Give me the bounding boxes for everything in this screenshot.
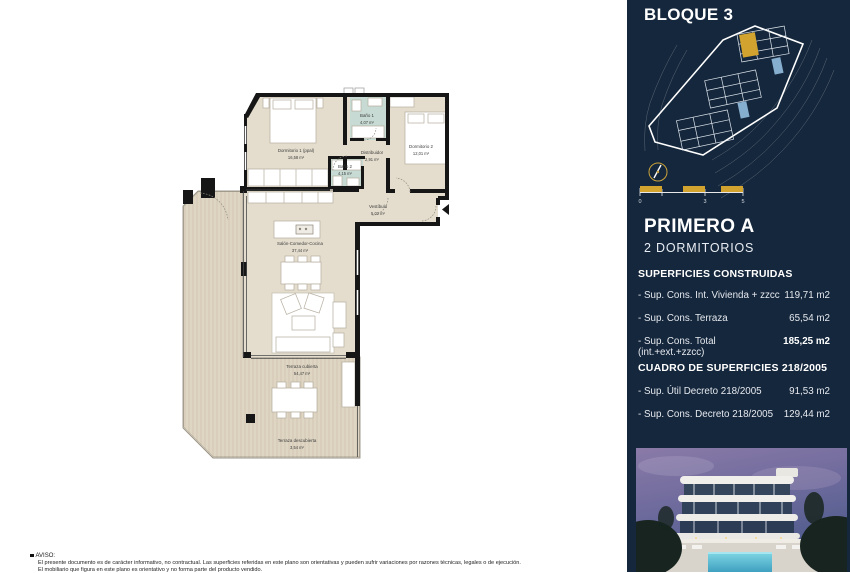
- room-label-dormitorio1: Dormitorio 1 (ppal): [278, 148, 315, 153]
- surface-row: - Sup. Cons. Terraza 65,54 m2: [638, 313, 830, 324]
- svg-text:4,15 m²: 4,15 m²: [338, 171, 353, 176]
- svg-text:2,91 m²: 2,91 m²: [365, 157, 380, 162]
- surface-row: - Sup. Cons. Int. Vivienda + zzcc 119,71…: [638, 290, 830, 301]
- floor-plan-area: Dormitorio 1 (ppal) 16,58 m² Baño 1 4,07…: [0, 0, 627, 572]
- room-label-bano1: Baño 1: [360, 113, 374, 118]
- room-label-terraza-descubierta: Terraza descubierta: [278, 438, 317, 443]
- svg-text:37,44 m²: 37,44 m²: [292, 248, 309, 253]
- surface-row-total: - Sup. Cons. Total (int.+ext.+zzcc) 185,…: [638, 336, 830, 358]
- scale-label-3: 3: [703, 199, 706, 205]
- svg-text:12,01 m²: 12,01 m²: [413, 151, 430, 156]
- site-map: 0 3 5: [627, 20, 850, 210]
- pool-2: [737, 101, 749, 119]
- cuadro-row: - Sup. Útil Decreto 218/2005 91,53 m2: [638, 386, 830, 397]
- pool-1: [771, 57, 783, 75]
- pool: [708, 552, 772, 572]
- page: { "right_panel": { "title": "BLOQUE 3", …: [0, 0, 850, 572]
- room-label-distribuidor: Distribuidor: [361, 150, 384, 155]
- room-label-salon: Salón-Comedor-Cocina: [277, 241, 323, 246]
- compass-icon: [649, 163, 667, 181]
- scale-bar: 0 3 5: [638, 186, 744, 205]
- entrance-arrow-icon: [442, 204, 449, 215]
- room-label-bano2: Baño 2: [338, 164, 352, 169]
- room-label-dormitorio2: Dormitorio 2: [409, 144, 433, 149]
- site-buildings: [676, 26, 789, 150]
- svg-text:5,02 m²: 5,02 m²: [371, 211, 386, 216]
- svg-text:54,47 m²: 54,47 m²: [294, 371, 311, 376]
- right-panel: BLOQUE 3: [627, 0, 850, 572]
- disclaimer: AVISO: El presente documento es de carác…: [30, 553, 605, 573]
- unit-name: PRIMERO A: [644, 216, 755, 238]
- room-label-terraza-cubierta: Terraza cubierta: [286, 364, 318, 369]
- scale-label-5: 5: [741, 199, 744, 205]
- cuadro-section-title: CUADRO DE SUPERFICIES 218/2005: [638, 362, 827, 374]
- bullet-square-icon: [30, 554, 34, 558]
- floor-plan-svg: Dormitorio 1 (ppal) 16,58 m² Baño 1 4,07…: [0, 0, 627, 572]
- cuadro-row: - Sup. Cons. Decreto 218/2005 129,44 m2: [638, 409, 830, 420]
- aviso-title: AVISO:: [36, 553, 56, 559]
- aviso-line2: El mobiliario que figura en este plano e…: [30, 567, 605, 573]
- scale-label-0: 0: [638, 199, 641, 205]
- surfaces-section-title: SUPERFICIES CONSTRUIDAS: [638, 268, 793, 280]
- svg-text:3,54 m²: 3,54 m²: [290, 445, 305, 450]
- building: [674, 468, 800, 539]
- unit-subtitle: 2 DORMITORIOS: [644, 241, 754, 255]
- svg-text:16,58 m²: 16,58 m²: [288, 155, 305, 160]
- room-label-vestibulo: Vestíbulo: [369, 204, 388, 209]
- aviso-line1: El presente documento es de carácter inf…: [30, 560, 605, 567]
- svg-text:4,07 m²: 4,07 m²: [360, 120, 375, 125]
- contour-lines: [645, 40, 834, 198]
- building-photo: [636, 448, 847, 572]
